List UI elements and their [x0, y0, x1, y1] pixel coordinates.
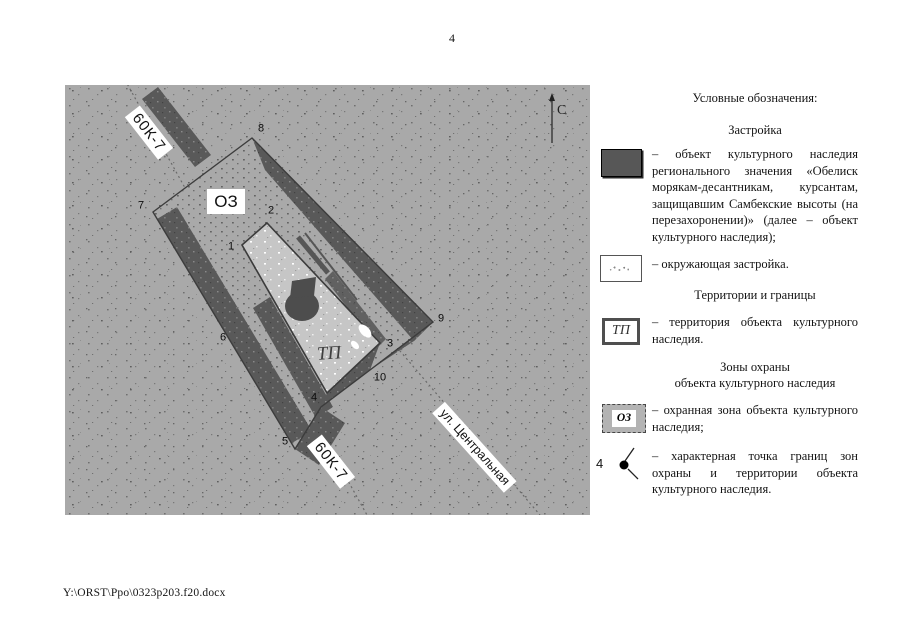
point-swatch-number: 4	[596, 456, 603, 473]
protection-zone-swatch-label: ОЗ	[612, 410, 636, 427]
page-number: 4	[420, 31, 484, 46]
point-description: – характерная точка границ зон охраны и …	[652, 448, 858, 498]
document-page: 4	[0, 0, 905, 640]
surrounding-buildings-description: – окружающая застройка.	[652, 256, 858, 273]
territory-description: – территория объекта культурного наследи…	[652, 314, 858, 347]
protection-zone-swatch: ОЗ	[602, 404, 646, 433]
point-label-10: 10	[374, 373, 386, 384]
legend-zones-heading-line2: объекта культурного наследия	[652, 375, 858, 392]
point-marker-icon	[610, 446, 652, 482]
legend-buildings-heading: Застройка	[652, 122, 858, 139]
point-label-1: 1	[228, 242, 234, 253]
point-label-3: 3	[387, 339, 393, 350]
protection-zone-description: – охранная зона объекта культурного насл…	[652, 402, 858, 435]
point-label-7: 7	[138, 201, 144, 212]
north-indicator: С	[543, 93, 583, 149]
point-label-2: 2	[268, 206, 274, 217]
file-path-footer: Y:\ORST\Ppo\0323p203.f20.docx	[63, 587, 226, 599]
legend-territories-heading: Территории и границы	[652, 287, 858, 304]
zone-label-oz: ОЗ	[207, 189, 245, 214]
surrounding-buildings-swatch	[600, 255, 642, 282]
point-label-5: 5	[282, 437, 288, 448]
point-label-8: 8	[258, 124, 264, 135]
heritage-object-swatch	[601, 149, 642, 177]
heritage-site-map: 60К-7 60К-7 ул. Центральная ОЗ ТП С 1 2 …	[65, 85, 590, 515]
territory-label-tp: ТП	[316, 342, 342, 366]
point-label-9: 9	[438, 314, 444, 325]
territory-swatch: ТП	[602, 318, 640, 345]
legend-title: Условные обозначения:	[652, 90, 858, 107]
legend-zones-heading-line1: Зоны охраны	[652, 359, 858, 376]
north-letter: С	[557, 103, 566, 119]
point-label-4: 4	[311, 393, 317, 404]
point-label-6: 6	[220, 333, 226, 344]
heritage-object-description: – объект культурного наследия региональн…	[652, 146, 858, 245]
